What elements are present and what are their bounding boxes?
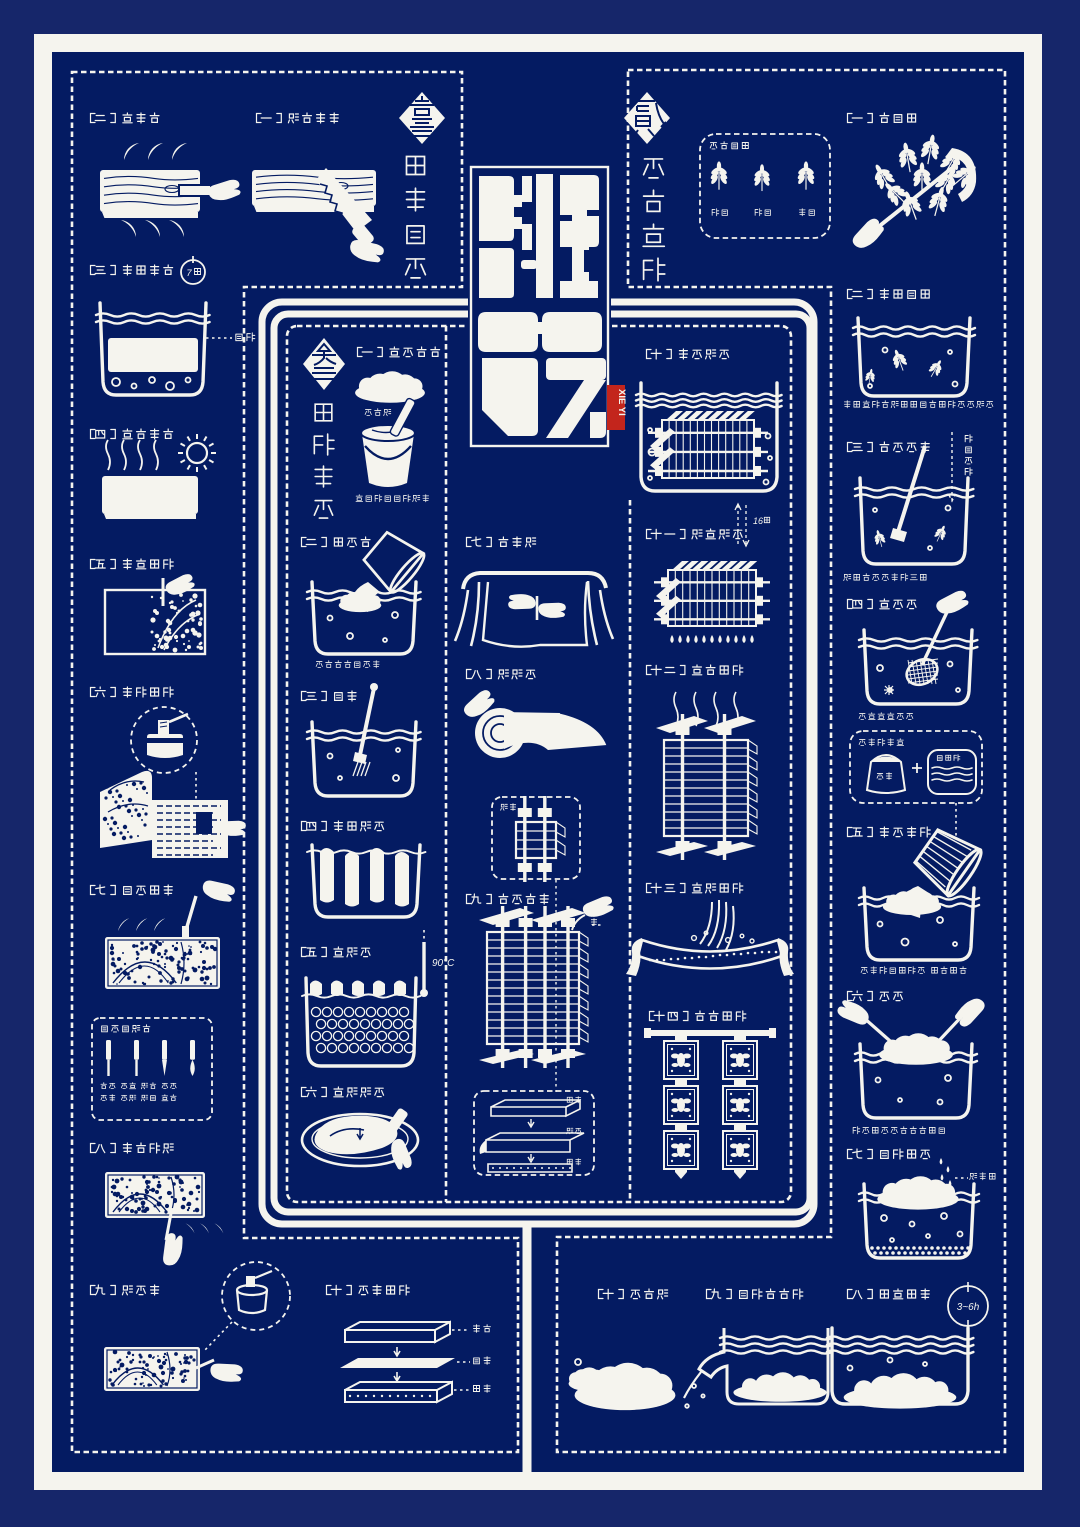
svg-text:90°C: 90°C xyxy=(432,958,455,969)
svg-text:XIE YI: XIE YI xyxy=(616,389,627,416)
svg-text:3~6h: 3~6h xyxy=(957,1302,980,1313)
svg-text:7: 7 xyxy=(186,268,192,279)
svg-text:16: 16 xyxy=(753,516,763,526)
